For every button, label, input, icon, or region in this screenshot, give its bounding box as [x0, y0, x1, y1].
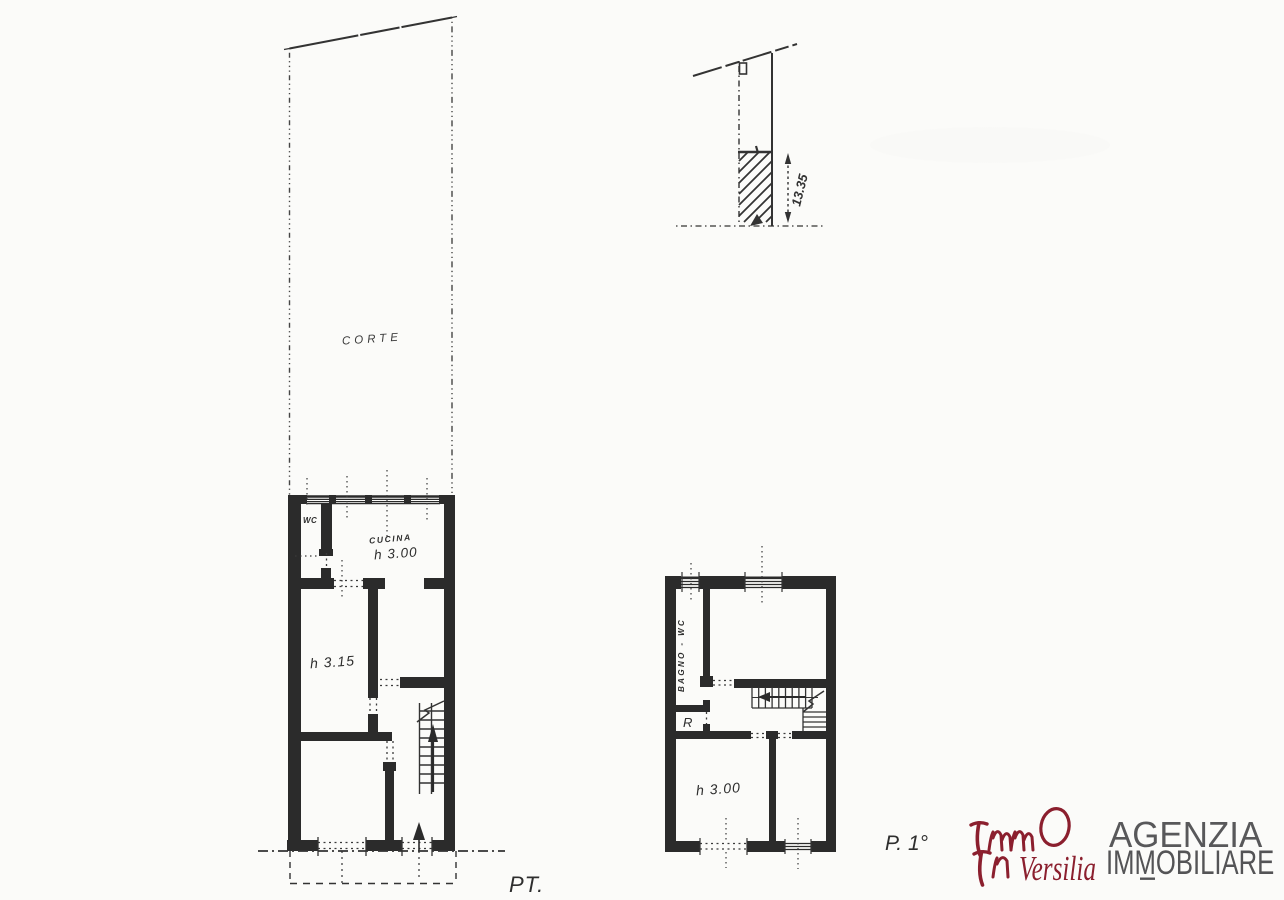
svg-text:Versilia: Versilia: [1019, 849, 1096, 888]
svg-text:P. 1°: P. 1°: [885, 832, 928, 855]
svg-text:PT.: PT.: [509, 872, 544, 897]
svg-text:h 3.00: h 3.00: [695, 779, 741, 798]
svg-text:h 3.00: h 3.00: [374, 544, 418, 562]
svg-text:WC: WC: [303, 516, 317, 525]
svg-text:R: R: [683, 715, 692, 730]
svg-text:h 3.15: h 3.15: [309, 652, 355, 671]
svg-text:BAGNO - WC: BAGNO - WC: [677, 618, 686, 692]
svg-text:IMMOBILIARE: IMMOBILIARE: [1106, 845, 1274, 882]
